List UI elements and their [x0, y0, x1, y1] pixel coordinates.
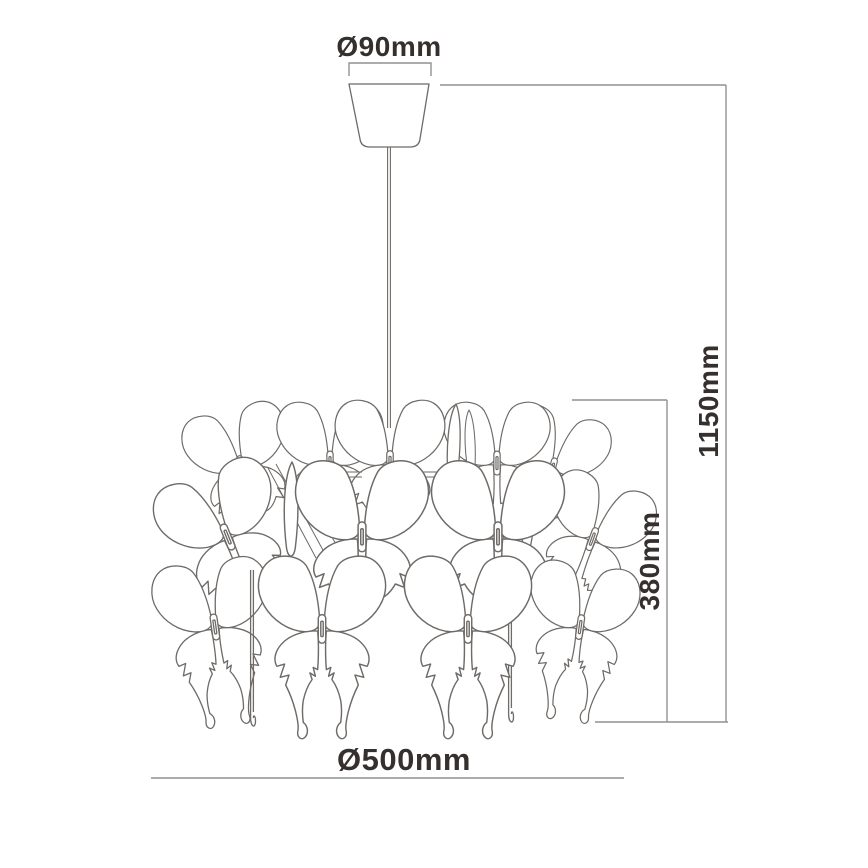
total-drop-label: 1150mm: [693, 344, 725, 458]
side-wing: [284, 462, 298, 556]
butterfly-shade: [145, 397, 663, 739]
canopy-diameter-label: Ø90mm: [336, 31, 441, 63]
lamp-line-drawing: [0, 0, 868, 868]
ceiling-canopy: [349, 84, 429, 147]
shade-diameter-label: Ø500mm: [337, 742, 471, 778]
suspension-cable: [388, 147, 391, 428]
lamp-fixture: [145, 84, 663, 739]
canopy-width-bracket: [349, 63, 431, 76]
shade-height-label: 380mm: [634, 511, 666, 610]
pendant-lamp-dimension-diagram: Ø90mm 1150mm 380mm Ø500mm: [0, 0, 868, 868]
